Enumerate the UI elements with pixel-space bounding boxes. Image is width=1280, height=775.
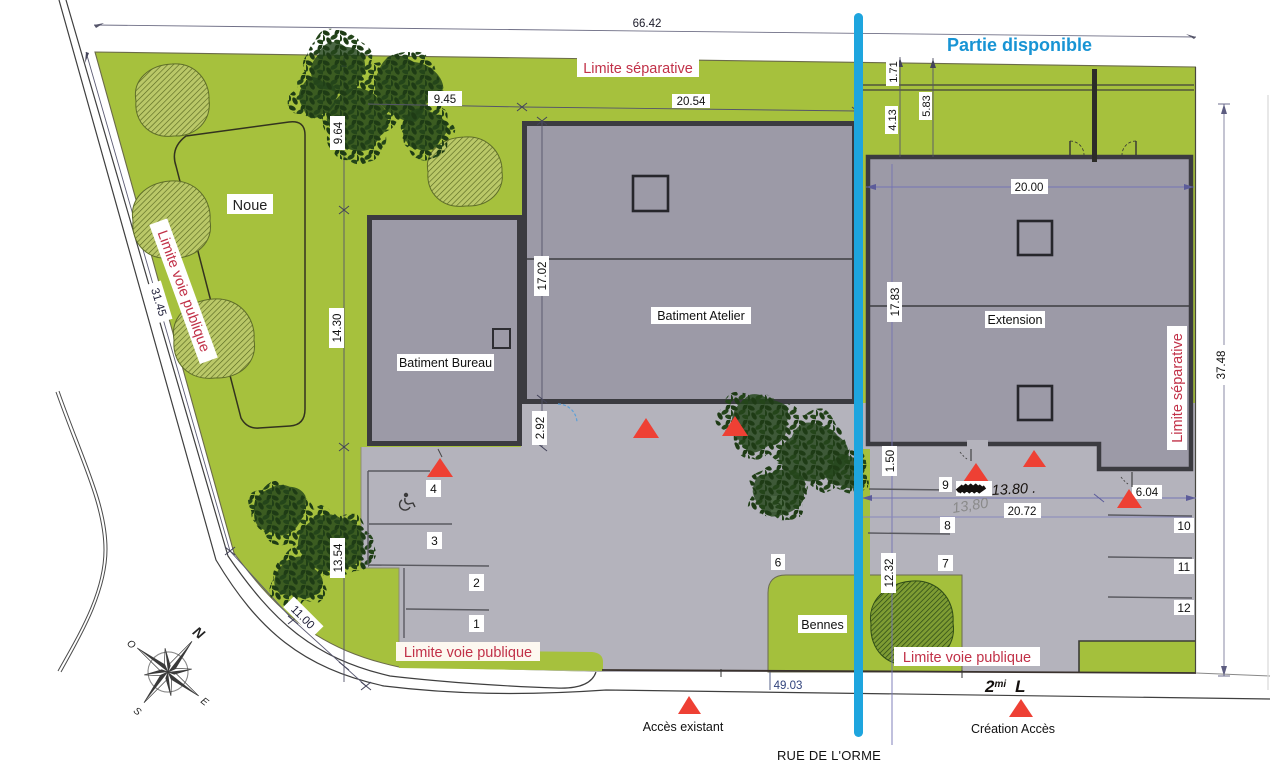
- svg-text:2: 2: [473, 576, 480, 590]
- svg-text:Extension: Extension: [988, 313, 1043, 327]
- svg-text:37.48: 37.48: [1216, 351, 1228, 380]
- svg-text:13.54: 13.54: [333, 543, 345, 572]
- svg-text:12: 12: [1177, 601, 1191, 615]
- svg-text:Limite voie publique: Limite voie publique: [903, 650, 1031, 666]
- svg-text:RUE DE L'ORME: RUE DE L'ORME: [777, 748, 881, 763]
- svg-text:Limite voie publique: Limite voie publique: [404, 645, 532, 661]
- svg-text:20.72: 20.72: [1008, 506, 1037, 518]
- svg-text:6.04: 6.04: [1136, 487, 1159, 499]
- svg-text:10: 10: [1177, 519, 1191, 533]
- svg-text:66.42: 66.42: [633, 18, 662, 30]
- svg-text:13.80 .: 13.80 .: [991, 481, 1036, 499]
- svg-text:1.50: 1.50: [885, 450, 897, 472]
- svg-text:Bennes: Bennes: [801, 618, 843, 632]
- svg-text:6: 6: [775, 556, 782, 570]
- svg-text:7: 7: [942, 557, 949, 571]
- svg-text:1: 1: [473, 617, 480, 631]
- svg-text:12.32: 12.32: [884, 559, 896, 588]
- svg-text:8: 8: [944, 519, 951, 533]
- svg-text:Accès existant: Accès existant: [643, 720, 724, 734]
- svg-text:14.30: 14.30: [332, 314, 344, 343]
- svg-text:2.92: 2.92: [535, 417, 547, 439]
- svg-text:Limite séparative: Limite séparative: [583, 61, 693, 77]
- svg-text:9: 9: [942, 478, 949, 492]
- svg-text:20.54: 20.54: [677, 96, 706, 108]
- svg-text:Batiment Atelier: Batiment Atelier: [657, 309, 745, 323]
- svg-text:9.64: 9.64: [333, 121, 345, 144]
- svg-text:Noue: Noue: [233, 198, 268, 214]
- svg-text:17.02: 17.02: [537, 262, 549, 291]
- svg-text:9.45: 9.45: [434, 94, 456, 106]
- svg-text:1.71: 1.71: [888, 61, 900, 82]
- svg-text:3: 3: [431, 534, 438, 548]
- svg-text:49.03: 49.03: [774, 680, 803, 692]
- svg-text:11: 11: [1178, 560, 1191, 574]
- svg-text:4.13: 4.13: [887, 109, 899, 130]
- svg-text:Limite séparative: Limite séparative: [1170, 333, 1186, 443]
- svg-text:17.83: 17.83: [890, 288, 902, 317]
- svg-text:20.00: 20.00: [1015, 182, 1044, 194]
- svg-text:4: 4: [430, 482, 437, 496]
- svg-text:Partie disponible: Partie disponible: [947, 35, 1092, 55]
- svg-text:Création Accès: Création Accès: [971, 722, 1055, 736]
- svg-text:Batiment Bureau: Batiment Bureau: [399, 356, 492, 370]
- svg-text:5.83: 5.83: [921, 95, 933, 116]
